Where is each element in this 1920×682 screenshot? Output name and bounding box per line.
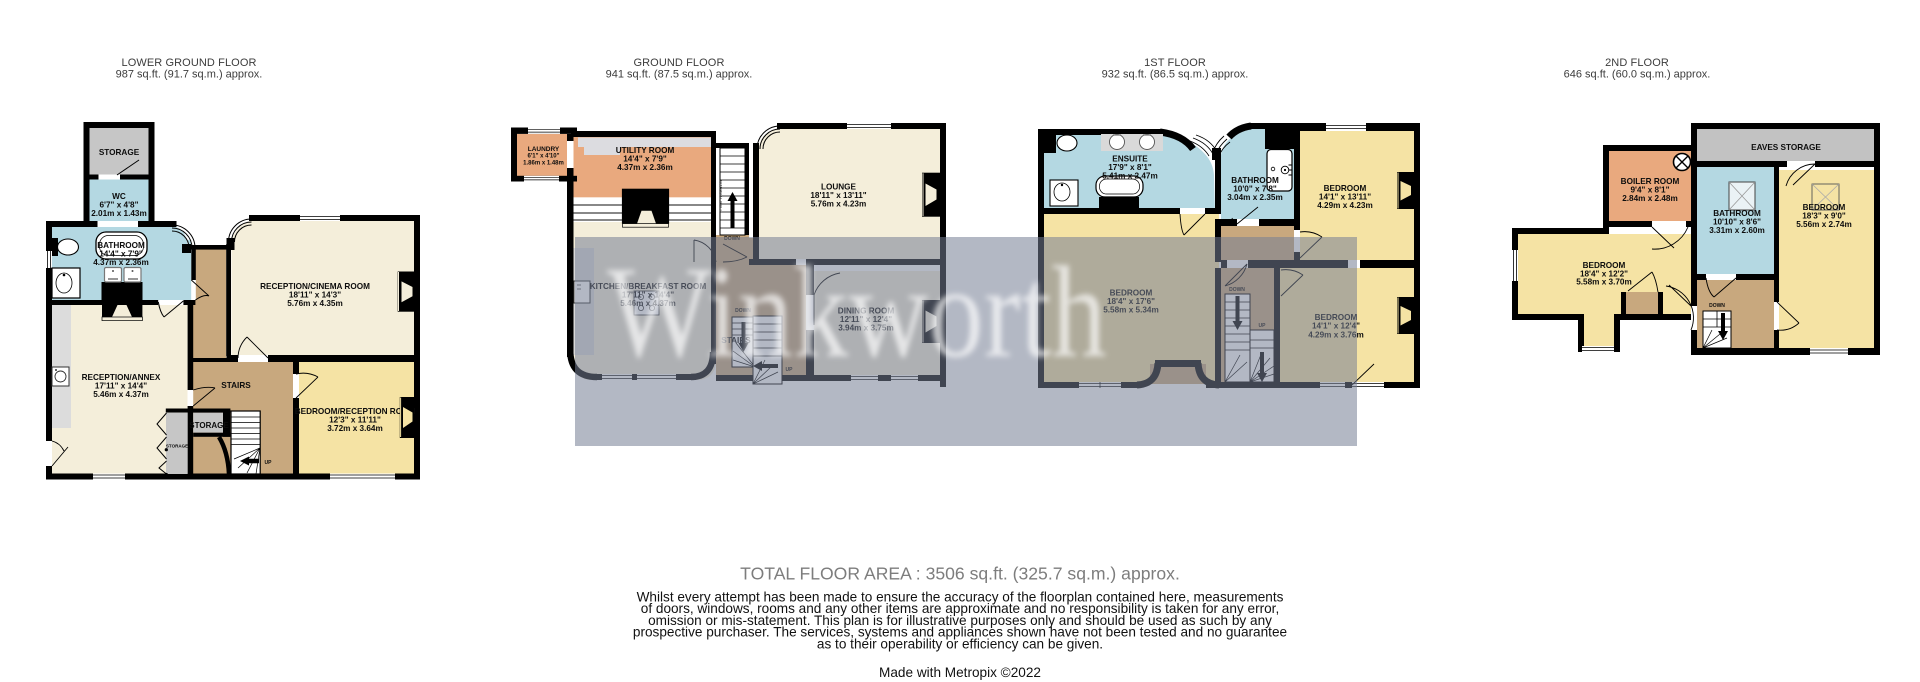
svg-text:6'1" x 4'10": 6'1" x 4'10" bbox=[528, 154, 560, 160]
svg-text:3.72m x 3.64m: 3.72m x 3.64m bbox=[327, 424, 383, 433]
svg-text:STAIRS: STAIRS bbox=[221, 381, 251, 390]
svg-text:4.37m x 2.36m: 4.37m x 2.36m bbox=[93, 258, 149, 267]
svg-text:Made with Metropix ©2022: Made with Metropix ©2022 bbox=[879, 665, 1041, 680]
svg-text:as to their operability or eff: as to their operability or efficiency ca… bbox=[817, 636, 1103, 651]
svg-text:3.04m x 2.35m: 3.04m x 2.35m bbox=[1227, 193, 1283, 202]
svg-text:1.86m x 1.48m: 1.86m x 1.48m bbox=[523, 160, 564, 166]
svg-text:941 sq.ft. (87.5 sq.m.) approx: 941 sq.ft. (87.5 sq.m.) approx. bbox=[606, 69, 753, 81]
svg-text:STORAGE: STORAGE bbox=[189, 421, 229, 430]
svg-text:UP: UP bbox=[265, 460, 273, 466]
svg-text:5.56m x 2.74m: 5.56m x 2.74m bbox=[1796, 220, 1852, 229]
svg-text:GROUND FLOOR: GROUND FLOOR bbox=[633, 57, 724, 69]
svg-text:2.84m x 2.48m: 2.84m x 2.48m bbox=[1622, 194, 1678, 203]
svg-text:987 sq.ft. (91.7 sq.m.) approx: 987 sq.ft. (91.7 sq.m.) approx. bbox=[116, 69, 263, 81]
svg-text:5.41m x 2.47m: 5.41m x 2.47m bbox=[1102, 172, 1158, 181]
svg-text:2ND FLOOR: 2ND FLOOR bbox=[1605, 57, 1669, 69]
svg-text:4.37m x 2.36m: 4.37m x 2.36m bbox=[617, 163, 673, 172]
svg-text:646 sq.ft. (60.0 sq.m.) approx: 646 sq.ft. (60.0 sq.m.) approx. bbox=[1564, 69, 1711, 81]
svg-text:1ST FLOOR: 1ST FLOOR bbox=[1144, 57, 1206, 69]
svg-text:INTERNAL WALL: INTERNAL WALL bbox=[719, 180, 724, 212]
svg-text:5.58m x 3.70m: 5.58m x 3.70m bbox=[1576, 278, 1632, 287]
svg-text:3.31m x 2.60m: 3.31m x 2.60m bbox=[1709, 226, 1765, 235]
svg-text:EAVES STORAGE: EAVES STORAGE bbox=[1751, 143, 1821, 152]
svg-text:STORAGE: STORAGE bbox=[166, 444, 188, 449]
svg-text:LOWER GROUND FLOOR: LOWER GROUND FLOOR bbox=[121, 57, 256, 69]
svg-text:5.46m x 4.37m: 5.46m x 4.37m bbox=[93, 390, 149, 399]
svg-text:5.76m x 4.35m: 5.76m x 4.35m bbox=[287, 299, 343, 308]
svg-text:932 sq.ft. (86.5 sq.m.) approx: 932 sq.ft. (86.5 sq.m.) approx. bbox=[1102, 69, 1249, 81]
svg-text:STORAGE: STORAGE bbox=[99, 148, 140, 157]
svg-text:TOTAL FLOOR AREA : 3506 sq.ft.: TOTAL FLOOR AREA : 3506 sq.ft. (325.7 sq… bbox=[740, 564, 1180, 584]
svg-text:DOWN: DOWN bbox=[1709, 303, 1725, 309]
svg-text:LAUNDRY: LAUNDRY bbox=[528, 146, 560, 153]
svg-text:4.29m x 4.23m: 4.29m x 4.23m bbox=[1317, 201, 1373, 210]
svg-text:2.01m x 1.43m: 2.01m x 1.43m bbox=[91, 209, 147, 218]
svg-text:5.76m x 4.23m: 5.76m x 4.23m bbox=[811, 200, 867, 209]
svg-text:Winkworth: Winkworth bbox=[607, 240, 1107, 385]
